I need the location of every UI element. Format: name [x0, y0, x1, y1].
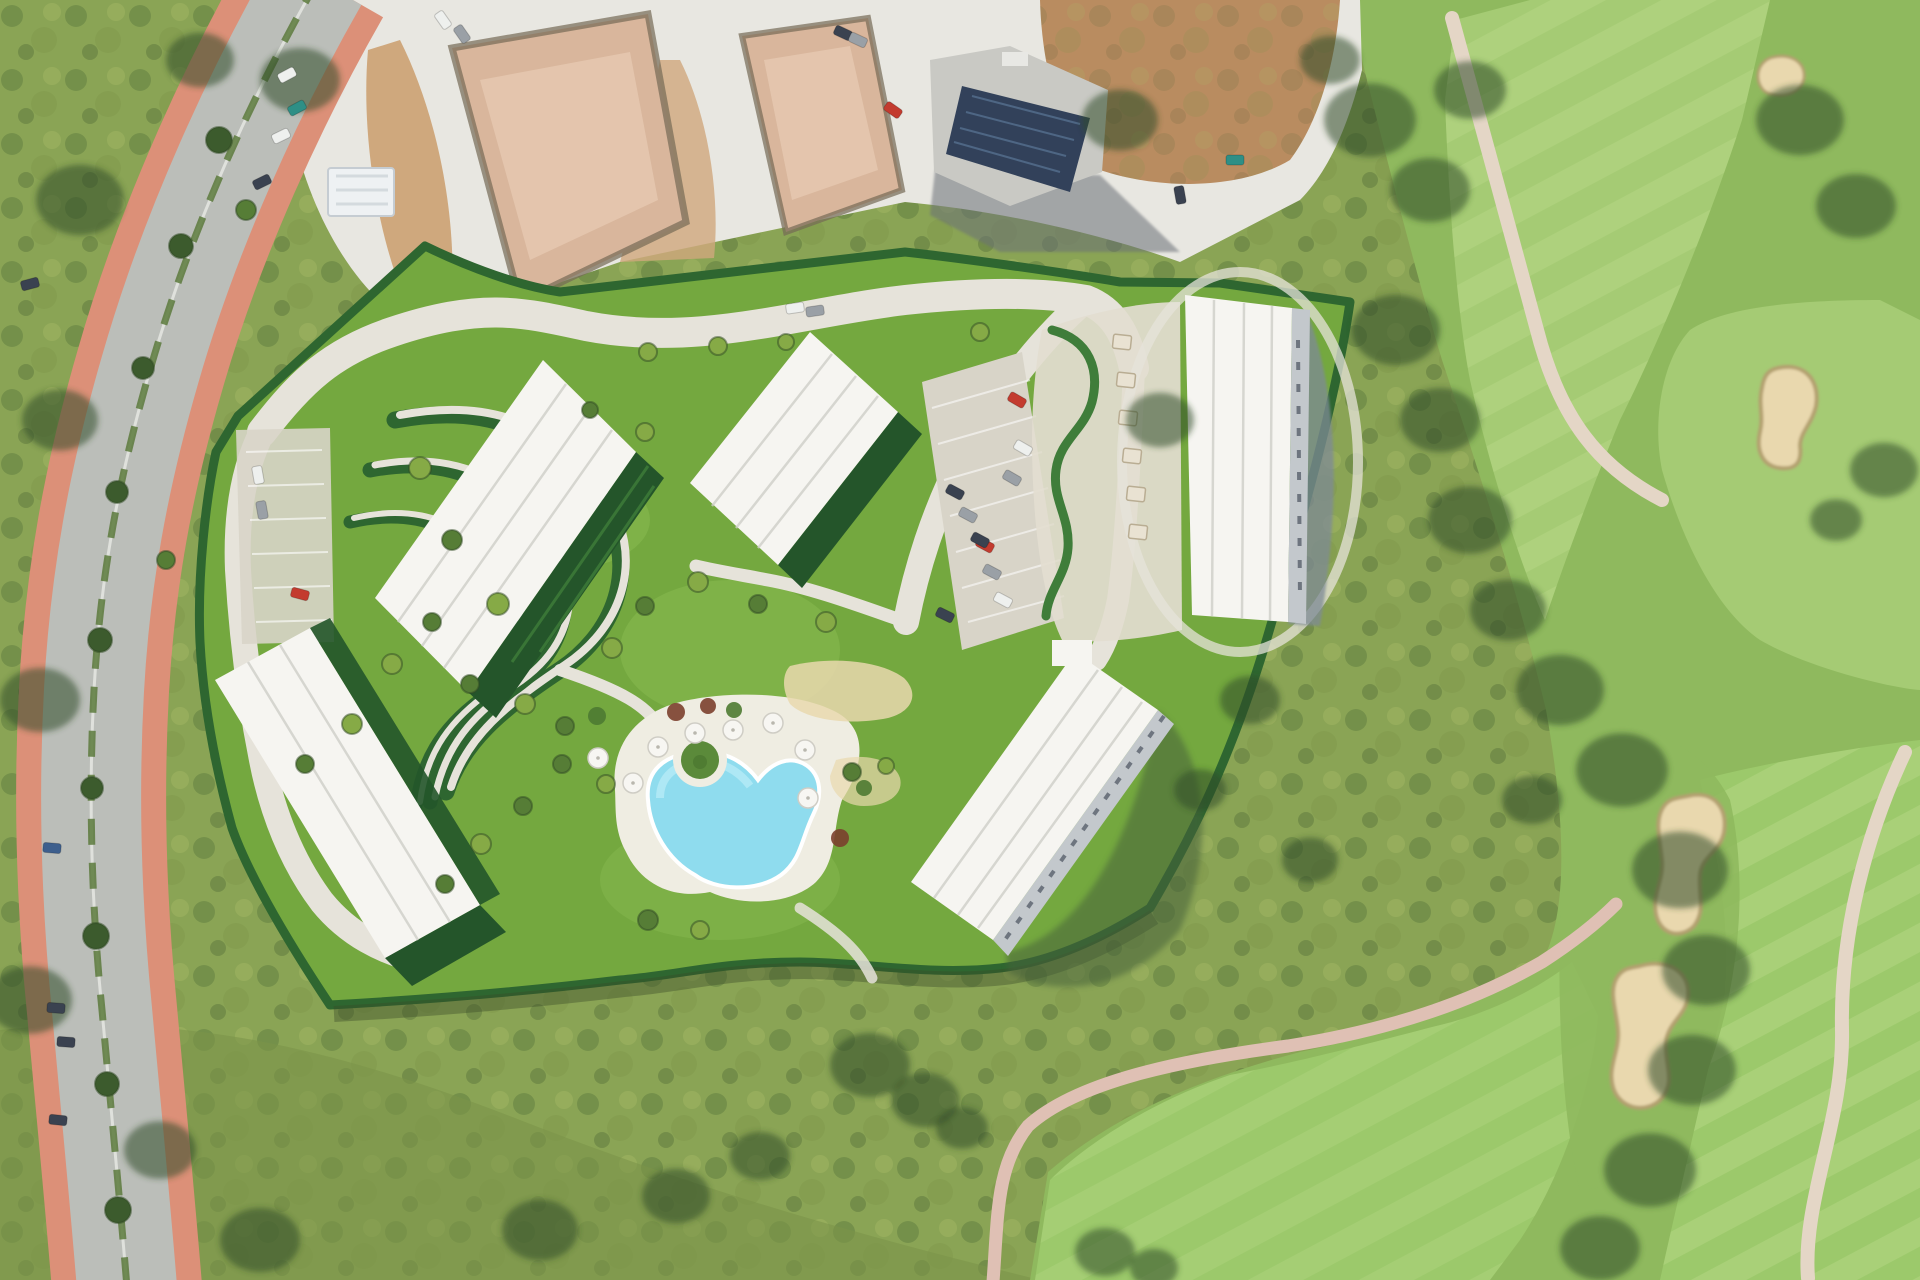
tree-cluster	[1390, 158, 1470, 222]
parasol-pole	[806, 796, 810, 800]
tree-cluster	[1502, 776, 1562, 824]
tree	[382, 654, 402, 674]
tree-cluster	[642, 1169, 710, 1223]
tree	[709, 337, 727, 355]
parasol-pole	[803, 748, 807, 752]
tree-cluster	[0, 668, 80, 732]
tree-cluster	[1352, 295, 1440, 365]
car	[1226, 155, 1244, 165]
tree	[157, 551, 175, 569]
carport	[1122, 448, 1141, 464]
tree	[971, 323, 989, 341]
tree-cluster	[1400, 388, 1480, 452]
parasol-pole	[656, 745, 660, 749]
tree-cluster	[1428, 486, 1512, 553]
tree-cluster	[1850, 443, 1918, 497]
tree	[878, 758, 894, 774]
tree-cluster	[1560, 1216, 1640, 1280]
tree-cluster	[1756, 85, 1844, 155]
tree	[639, 343, 657, 361]
tree	[409, 457, 431, 479]
tree	[749, 595, 767, 613]
tree-cluster	[1220, 676, 1280, 724]
tree-cluster	[1075, 1228, 1135, 1276]
tree	[81, 777, 103, 799]
carport	[1126, 486, 1145, 502]
tree-cluster	[1576, 733, 1668, 807]
carport	[1112, 334, 1131, 350]
tree-cluster	[1648, 1035, 1736, 1105]
parasol-pole	[631, 781, 635, 785]
tree	[816, 612, 836, 632]
tree-cluster	[936, 1107, 988, 1149]
block-ne-roof	[1185, 295, 1292, 622]
tree	[88, 628, 112, 652]
tree-cluster	[1300, 36, 1360, 84]
shrub	[856, 780, 872, 796]
tree	[461, 675, 479, 693]
tree	[206, 127, 232, 153]
block-ne	[1185, 295, 1334, 626]
rooftop-unit	[1002, 52, 1028, 66]
tree	[602, 638, 622, 658]
tree	[778, 334, 794, 350]
carport	[1128, 524, 1147, 540]
tree-cluster	[22, 390, 98, 451]
car	[785, 302, 804, 314]
tree-cluster	[1470, 580, 1546, 641]
shrub	[700, 698, 716, 714]
roadside-canopy	[328, 168, 394, 216]
tree-cluster	[1082, 90, 1158, 151]
parasol-pole	[771, 721, 775, 725]
carport	[1116, 372, 1135, 388]
tree-cluster	[1126, 393, 1194, 447]
tree-cluster	[730, 1132, 790, 1180]
car	[43, 842, 62, 854]
shrub	[831, 829, 849, 847]
tree	[487, 593, 509, 615]
parasol-pole	[596, 756, 600, 760]
tree-cluster	[36, 165, 124, 235]
tree	[442, 530, 462, 550]
tree	[423, 613, 441, 631]
tree	[691, 921, 709, 939]
tree-cluster	[166, 33, 234, 87]
west-parking	[236, 428, 334, 644]
tree-cluster	[1174, 769, 1226, 811]
aerial-render-svg	[0, 0, 1920, 1280]
tree-cluster	[1662, 935, 1750, 1005]
car	[49, 1114, 68, 1126]
tree-cluster	[502, 1200, 578, 1261]
tree-cluster	[1816, 174, 1896, 238]
tree	[597, 775, 615, 793]
car	[57, 1036, 76, 1047]
tree	[236, 200, 256, 220]
shrub	[667, 703, 685, 721]
tree	[636, 423, 654, 441]
tree-cluster	[1282, 838, 1338, 883]
tree	[105, 1197, 131, 1223]
tree	[688, 572, 708, 592]
tree-cluster	[1434, 61, 1506, 119]
shrub	[693, 755, 707, 769]
tree-cluster	[1604, 1133, 1696, 1207]
tree	[471, 834, 491, 854]
tree	[95, 1072, 119, 1096]
tree-cluster	[1632, 832, 1728, 909]
tree	[132, 357, 154, 379]
tree	[83, 923, 109, 949]
car	[47, 1002, 66, 1013]
tree	[342, 714, 362, 734]
aerial-image-stage	[0, 0, 1920, 1280]
tree-cluster	[1324, 83, 1416, 157]
tree	[515, 694, 535, 714]
car	[805, 305, 824, 317]
tree	[582, 402, 598, 418]
parasol-pole	[693, 731, 697, 735]
tree	[296, 755, 314, 773]
tree	[843, 763, 861, 781]
parasol-pole	[731, 728, 735, 732]
tree	[553, 755, 571, 773]
tree-cluster	[1810, 499, 1862, 541]
tree	[436, 875, 454, 893]
tree-cluster	[124, 1121, 196, 1179]
block-se-annex	[1052, 640, 1092, 666]
shrub	[726, 702, 742, 718]
tree	[514, 797, 532, 815]
tree	[556, 717, 574, 735]
west-parking-lot	[236, 428, 334, 644]
tree	[636, 597, 654, 615]
tree	[638, 910, 658, 930]
shrub	[588, 707, 606, 725]
tree	[169, 234, 193, 258]
tree-cluster	[1516, 655, 1604, 725]
tree	[106, 481, 128, 503]
tree-cluster	[220, 1208, 300, 1272]
